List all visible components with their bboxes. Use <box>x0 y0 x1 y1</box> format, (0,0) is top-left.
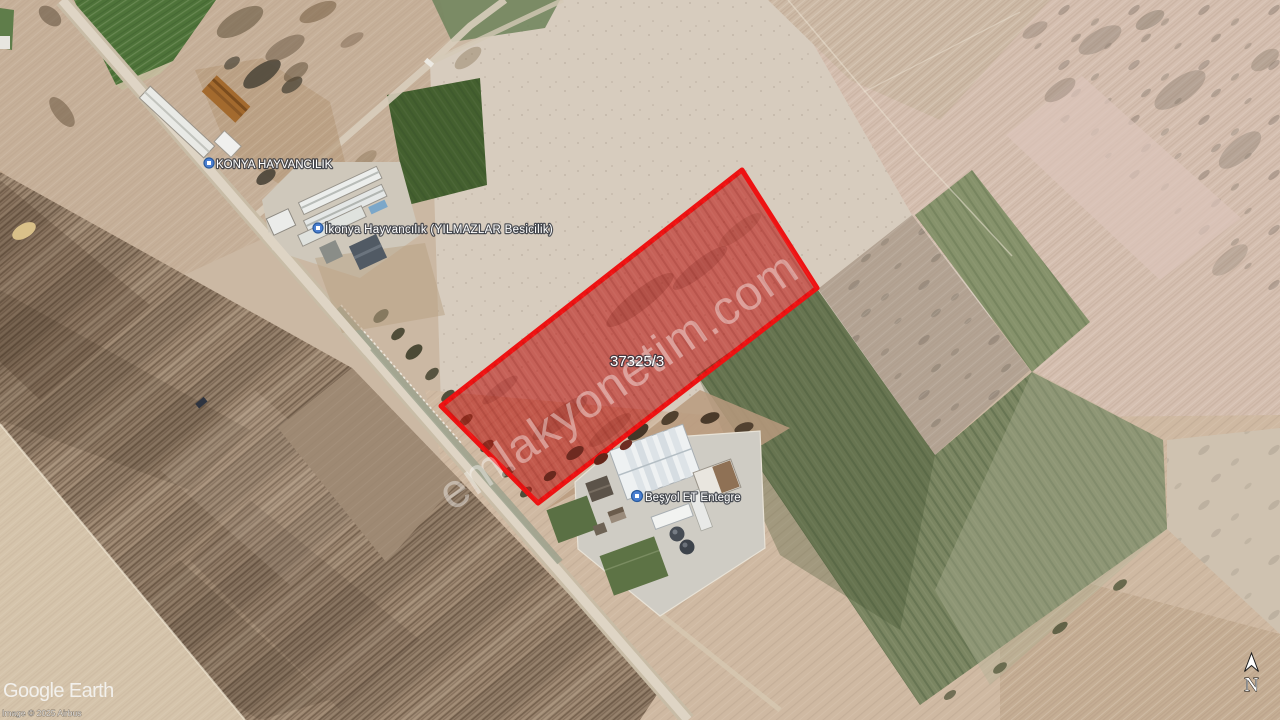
svg-text:Beşyol ET Entegre: Beşyol ET Entegre <box>645 492 741 504</box>
svg-text:İkonya Hayvancılık (YILMAZLAR: İkonya Hayvancılık (YILMAZLAR Besicilik) <box>325 223 553 236</box>
svg-text:Google Earth: Google Earth <box>3 680 114 702</box>
svg-text:Image © 2025 Airbus: Image © 2025 Airbus <box>2 708 82 718</box>
svg-text:KONYA HAYVANCILIK: KONYA HAYVANCILIK <box>216 159 333 171</box>
svg-text:N: N <box>1244 674 1258 696</box>
